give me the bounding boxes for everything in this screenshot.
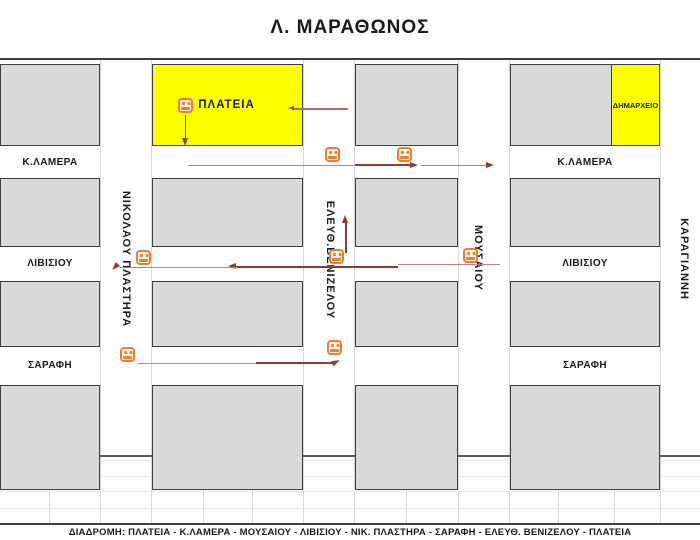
route-arrow-up-icon <box>342 215 348 223</box>
bus-stop-icon <box>120 347 135 362</box>
bus-stop-icon <box>178 98 193 113</box>
city-block <box>0 385 100 490</box>
grid-line <box>0 491 700 492</box>
route-arrow-turn-up-icon <box>331 357 341 366</box>
city-block <box>152 281 303 347</box>
grid-line <box>0 508 700 509</box>
map-bottom-boundary <box>0 523 700 525</box>
route-line-venizelou <box>345 223 347 253</box>
street-label-livisiou-left: ΛΙΒΙΣΙΟΥ <box>0 258 100 269</box>
plateia-label: ΠΛΑΤΕΙΑ <box>150 99 303 111</box>
route-line-sarafi <box>256 362 334 364</box>
city-block <box>152 178 303 247</box>
route-line-kalamera <box>188 165 355 166</box>
bus-stop-icon <box>136 250 151 265</box>
street-label-kalamera-left: Κ.ΛΑΜΕΡΑ <box>0 157 100 168</box>
city-block <box>0 64 100 146</box>
route-line-livisiou <box>120 267 237 268</box>
route-map: Λ. ΜΑΡΑΘΩΝΟΣ ΠΛΑΤΕΙΑ ΔΗΜΑΡΧΕΙΟ Κ.ΛΑΜΕΡΑ … <box>0 0 700 540</box>
city-block <box>355 281 458 347</box>
route-line-livisiou <box>236 266 398 268</box>
bus-stop-icon <box>463 248 478 263</box>
street-label-plastira: ΝΙΚΟΛΑΟΥ ΠΛΑΣΤΗΡΑ <box>120 184 132 334</box>
city-block <box>510 385 660 490</box>
city-block <box>510 281 660 347</box>
footer-route-description: ΔΙΑΔΡΟΜΗ: ΠΛΑΤΕΙΑ - Κ.ΛΑΜΕΡΑ - ΜΟΥΣΑΙΟΥ … <box>0 527 700 538</box>
bus-stop-icon <box>327 340 342 355</box>
route-arrow-turn-down-icon <box>110 262 120 272</box>
route-line-plateia-exit <box>185 115 187 139</box>
route-line-plateia-approach <box>292 108 348 110</box>
map-top-boundary <box>0 58 700 60</box>
city-block <box>0 178 100 247</box>
street-label-sarafi-right: ΣΑΡΑΦΗ <box>510 360 660 371</box>
street-label-karagianni: ΚΑΡΑΓΙΑΝΝΗ <box>678 214 690 304</box>
route-arrow-down-icon <box>182 138 188 146</box>
route-arrow-left-icon <box>288 106 294 110</box>
bus-stop-icon <box>397 147 412 162</box>
route-arrow-right-icon <box>486 162 494 168</box>
city-block <box>510 64 612 146</box>
city-block <box>0 281 100 347</box>
street-label-kalamera-right: Κ.ΛΑΜΕΡΑ <box>510 157 660 168</box>
bus-stop-icon <box>325 147 340 162</box>
city-block <box>355 64 458 146</box>
route-line-kalamera <box>355 164 413 166</box>
route-arrow-right-icon <box>410 162 418 168</box>
street-label-livisiou-right: ΛΙΒΙΣΙΟΥ <box>510 258 660 269</box>
route-line-sarafi <box>138 363 258 364</box>
city-block <box>355 385 458 490</box>
dimarxeio-label: ΔΗΜΑΡΧΕΙΟ <box>611 101 660 110</box>
city-block <box>355 178 458 247</box>
street-label-sarafi-left: ΣΑΡΑΦΗ <box>0 360 100 371</box>
route-line-livisiou <box>398 264 500 265</box>
bus-stop-icon <box>329 249 344 264</box>
page-title: Λ. ΜΑΡΑΘΩΝΟΣ <box>0 17 700 39</box>
city-block <box>510 178 660 247</box>
city-block <box>152 385 303 490</box>
route-line-kalamera <box>421 165 486 166</box>
